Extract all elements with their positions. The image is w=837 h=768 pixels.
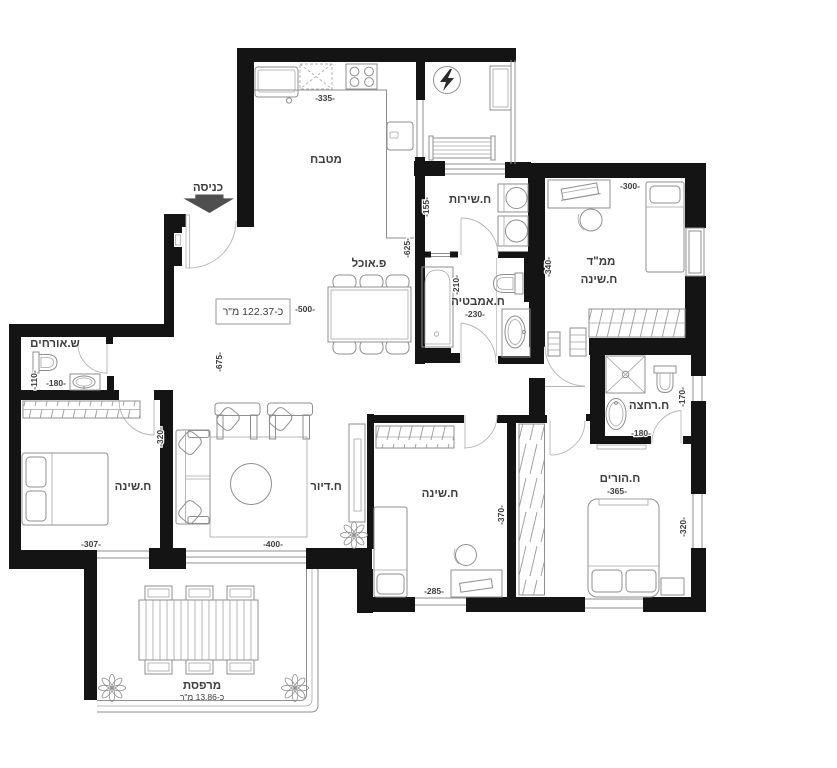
svg-text:ש.אורחים: ש.אורחים <box>30 338 80 350</box>
svg-text:כניסה: כניסה <box>193 182 223 194</box>
svg-text:-285-: -285- <box>424 586 444 596</box>
svg-text:ח.שינה: ח.שינה <box>115 481 152 493</box>
svg-text:-300-: -300- <box>620 181 640 191</box>
svg-text:-307-: -307- <box>81 539 101 549</box>
svg-text:-180-: -180- <box>631 428 651 438</box>
svg-text:-500-: -500- <box>295 304 315 314</box>
svg-text:ח.שינה: ח.שינה <box>581 274 618 286</box>
svg-text:-110-: -110- <box>29 370 39 390</box>
svg-text:ח.שירות: ח.שירות <box>449 194 491 206</box>
svg-text:ח.רחצה: ח.רחצה <box>629 400 669 412</box>
svg-text:ח.דיור: ח.דיור <box>310 481 342 493</box>
svg-text:ח.שינה: ח.שינה <box>422 488 459 500</box>
svg-text:-155-: -155- <box>421 197 431 217</box>
svg-text:כ-13.86 מ"ר: כ-13.86 מ"ר <box>180 692 224 702</box>
svg-text:-370-: -370- <box>496 505 506 525</box>
svg-text:ח.אמבטיה: ח.אמבטיה <box>451 296 505 308</box>
svg-text:ממ"ד: ממ"ד <box>587 256 616 268</box>
svg-text:-335-: -335- <box>315 93 335 103</box>
svg-text:ח.הורים: ח.הורים <box>600 473 641 485</box>
svg-text:-365-: -365- <box>607 486 627 496</box>
svg-text:מרפסת: מרפסת <box>183 680 221 692</box>
svg-text:-230-: -230- <box>465 309 485 319</box>
svg-text:מטבח: מטבח <box>310 154 342 166</box>
svg-text:פ.אוכל: פ.אוכל <box>352 257 387 270</box>
svg-text:-400-: -400- <box>263 539 283 549</box>
svg-text:-210-: -210- <box>451 275 461 295</box>
svg-text:-320-: -320- <box>155 427 165 447</box>
svg-text:כ-122.37 מ"ר: כ-122.37 מ"ר <box>223 306 284 318</box>
svg-text:-180-: -180- <box>46 378 66 388</box>
svg-text:-170-: -170- <box>677 387 687 407</box>
svg-text:-320-: -320- <box>678 517 688 537</box>
svg-text:-675-: -675- <box>214 352 224 372</box>
svg-text:-340-: -340- <box>543 257 553 277</box>
svg-text:-625-: -625- <box>402 238 412 258</box>
